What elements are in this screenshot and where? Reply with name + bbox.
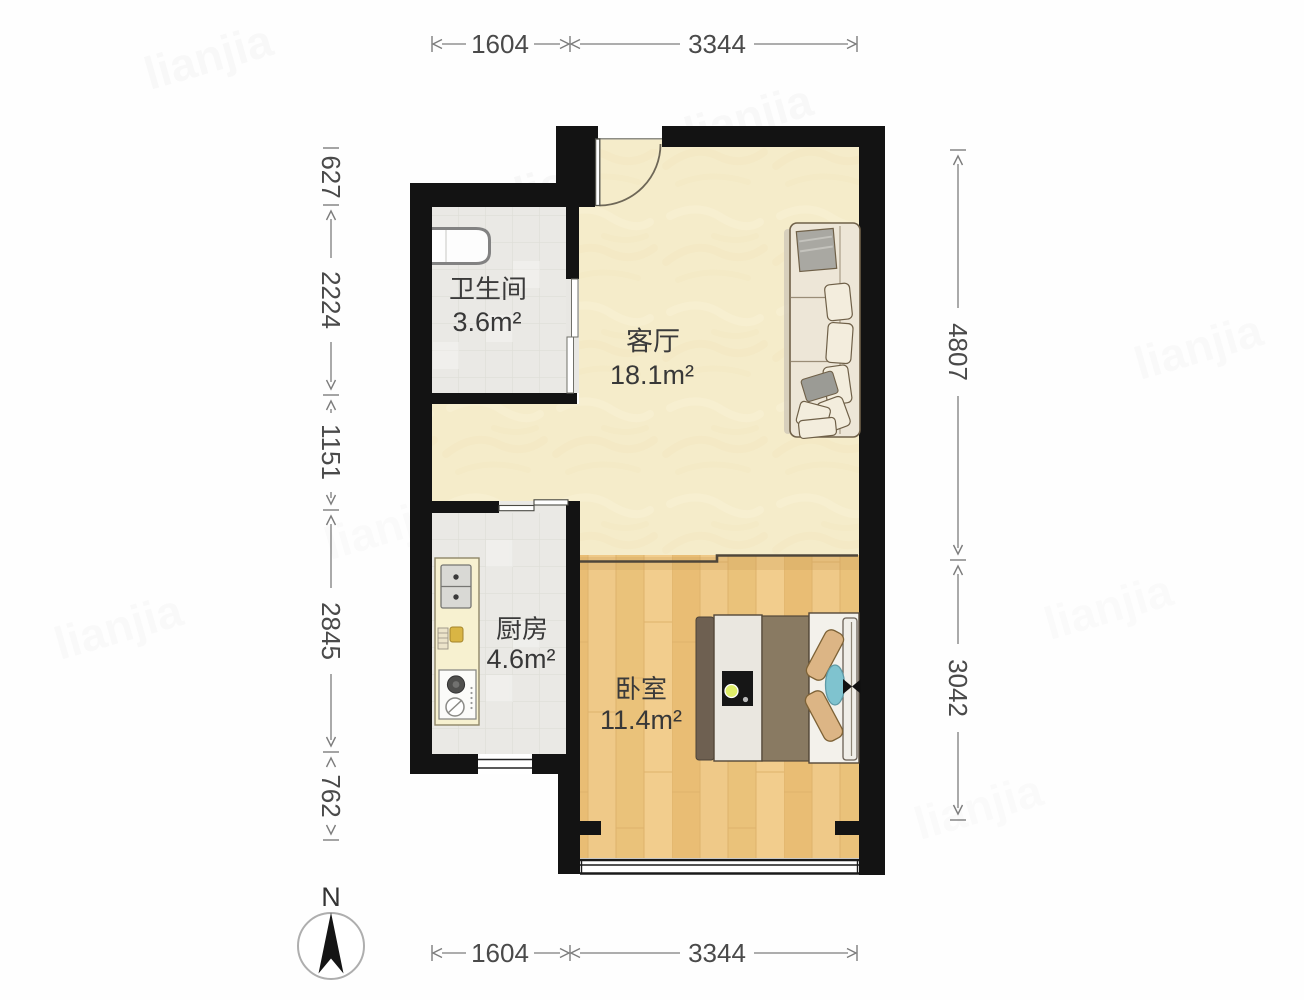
- svg-text:762: 762: [316, 774, 346, 817]
- svg-text:3344: 3344: [688, 938, 746, 968]
- svg-text:627: 627: [316, 155, 346, 198]
- svg-text:4807: 4807: [943, 323, 973, 381]
- svg-text:18.1m²: 18.1m²: [610, 360, 694, 390]
- svg-text:3344: 3344: [688, 29, 746, 59]
- svg-text:N: N: [321, 882, 341, 912]
- svg-text:1604: 1604: [471, 938, 529, 968]
- svg-text:11.4m²: 11.4m²: [600, 705, 682, 735]
- svg-text:1151: 1151: [316, 424, 346, 480]
- svg-text:4.6m²: 4.6m²: [486, 644, 555, 674]
- svg-text:1604: 1604: [471, 29, 529, 59]
- svg-text:2224: 2224: [316, 271, 346, 329]
- svg-text:2845: 2845: [316, 602, 346, 660]
- svg-text:3.6m²: 3.6m²: [452, 307, 521, 337]
- svg-text:3042: 3042: [943, 659, 973, 717]
